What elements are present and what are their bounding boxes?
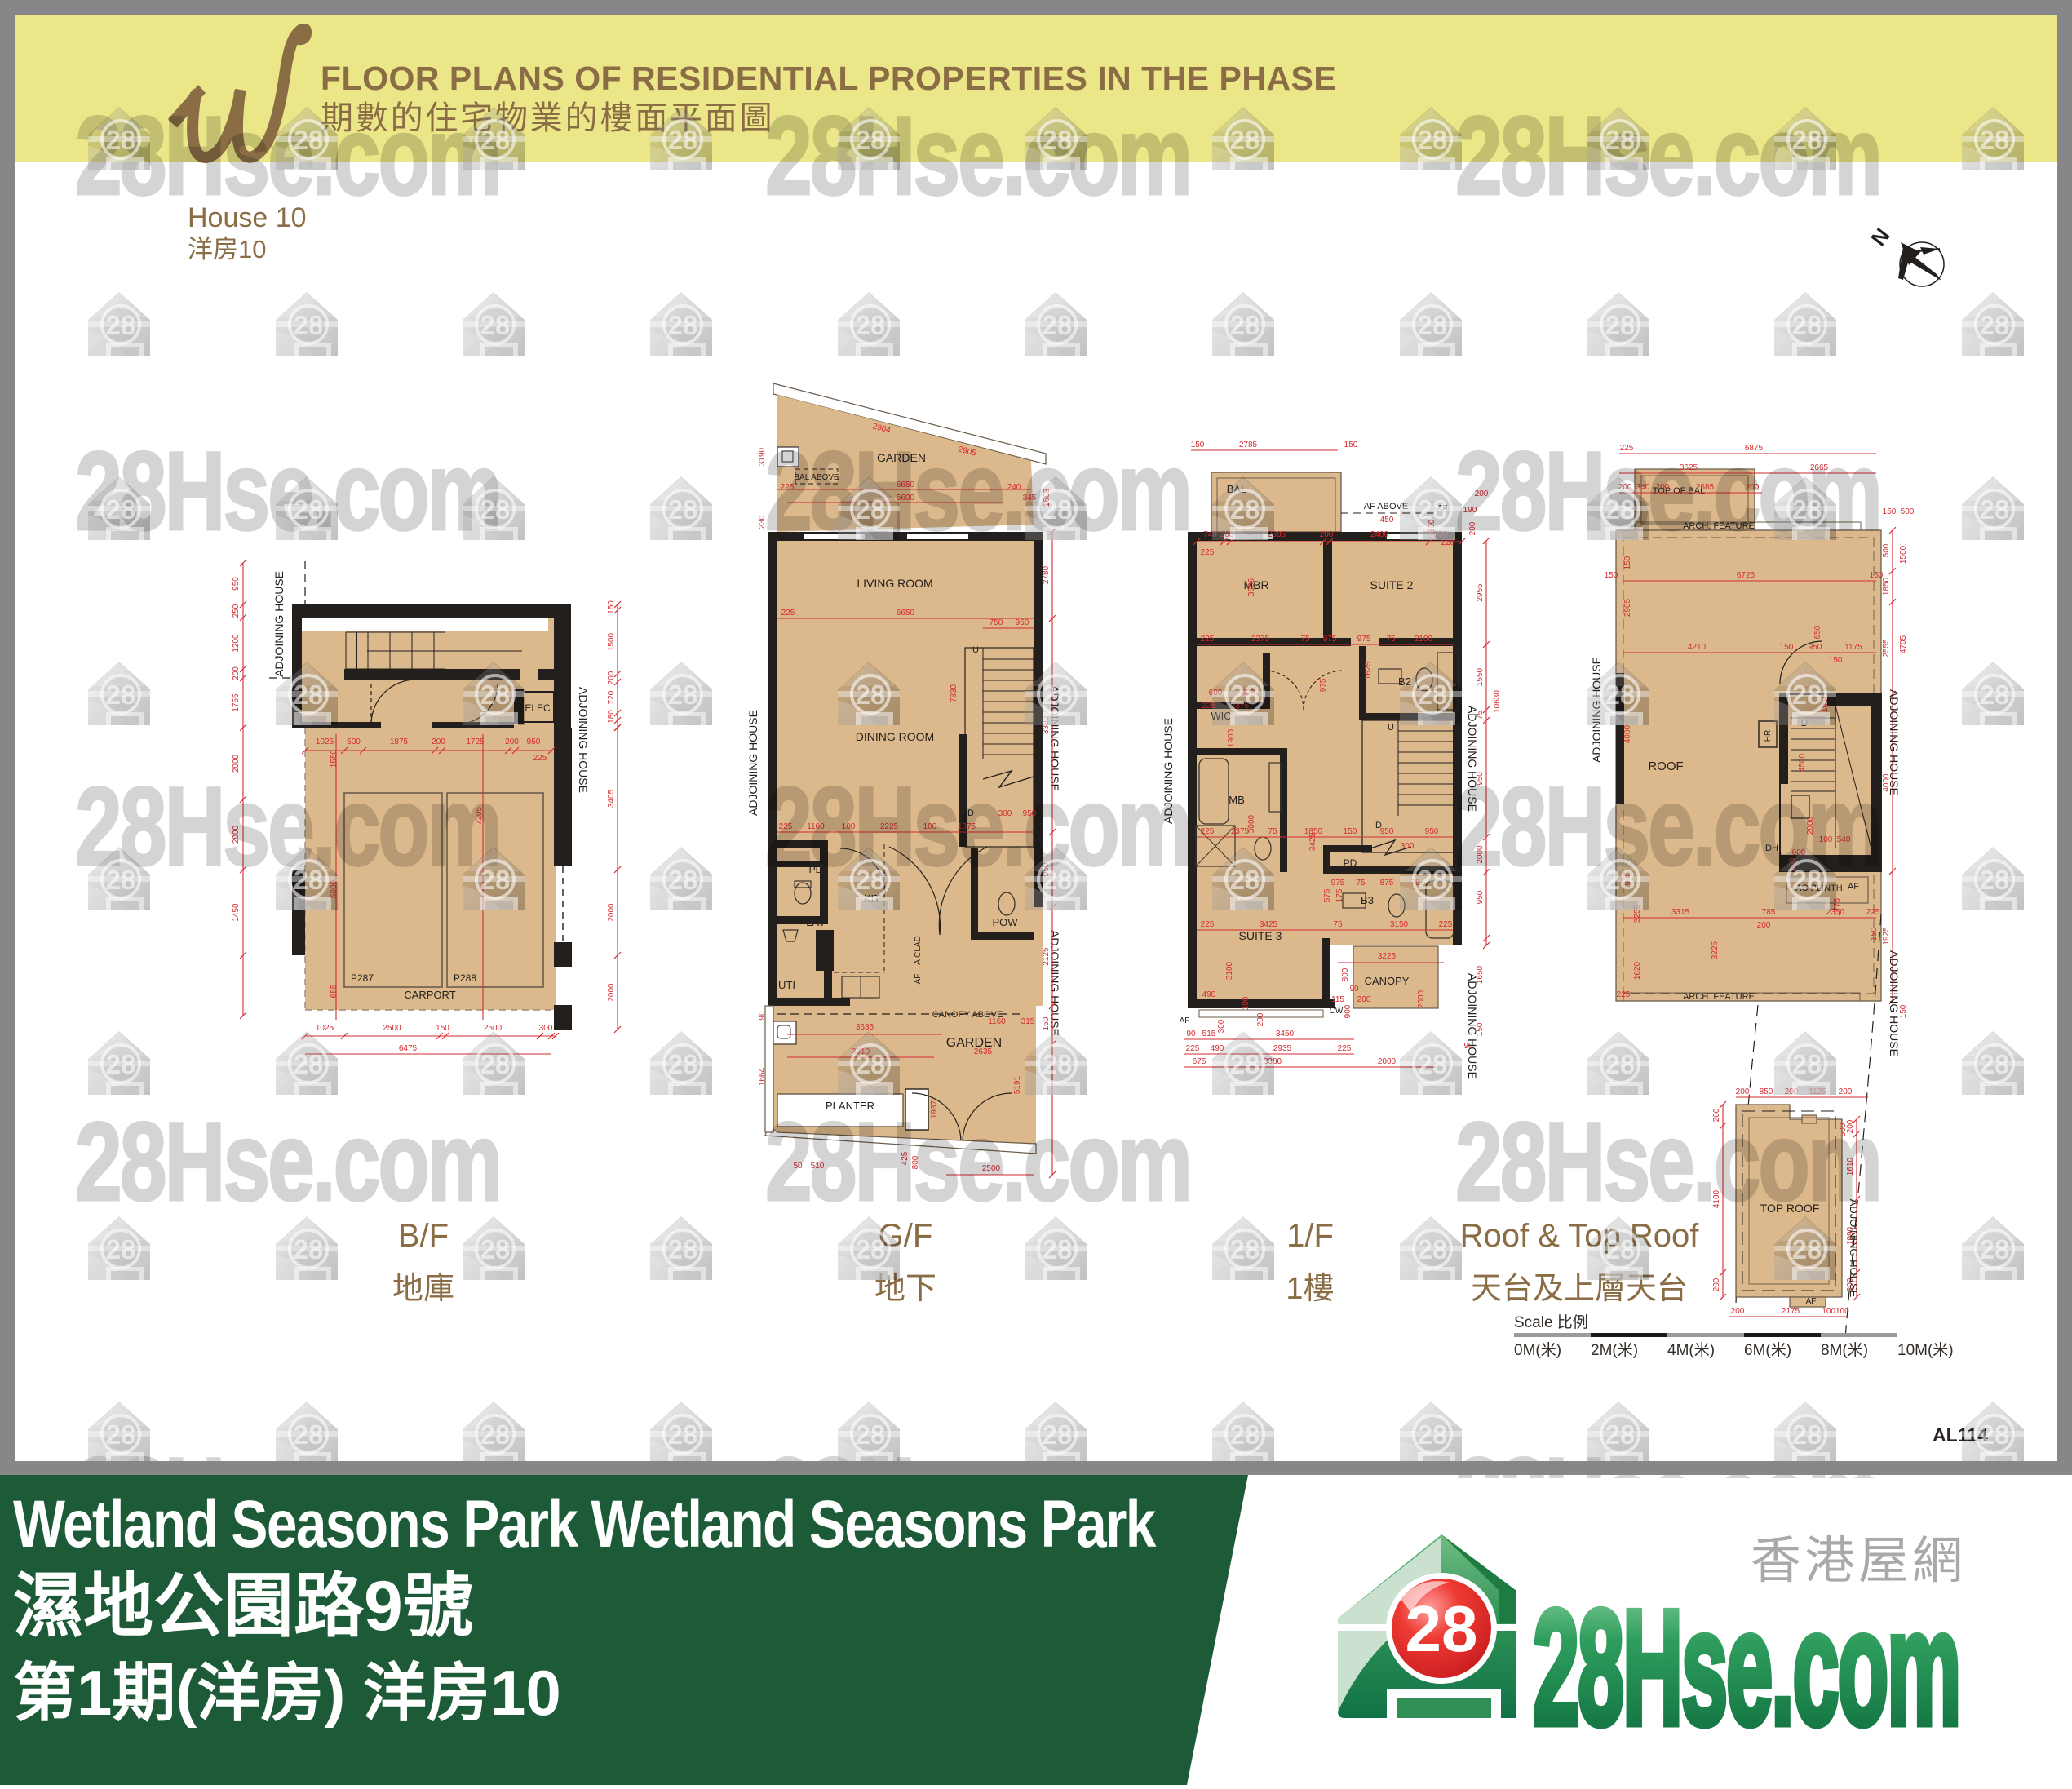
svg-text:655: 655 — [330, 984, 339, 998]
svg-text:150: 150 — [436, 1024, 449, 1033]
svg-text:Scale 比例: Scale 比例 — [1514, 1313, 1588, 1331]
svg-text:3605: 3605 — [1247, 578, 1256, 596]
svg-text:1550: 1550 — [1476, 667, 1485, 686]
svg-text:6475: 6475 — [399, 1044, 418, 1053]
svg-text:10M(米): 10M(米) — [1897, 1341, 1954, 1359]
svg-text:AF: AF — [914, 974, 923, 985]
svg-text:CARPORT: CARPORT — [404, 989, 455, 1001]
svg-text:3405: 3405 — [607, 789, 616, 808]
svg-text:150: 150 — [1883, 507, 1897, 516]
svg-text:P287: P287 — [351, 972, 374, 984]
svg-text:1500: 1500 — [1899, 545, 1908, 564]
svg-text:P288: P288 — [454, 972, 476, 984]
svg-text:1025: 1025 — [316, 1024, 334, 1033]
svg-text:CW: CW — [1330, 1007, 1344, 1016]
svg-text:2000: 2000 — [607, 983, 616, 1002]
svg-text:CANOPY: CANOPY — [1365, 975, 1410, 987]
svg-text:200: 200 — [232, 666, 241, 680]
svg-text:10630: 10630 — [1493, 690, 1502, 713]
svg-text:2175: 2175 — [1782, 1307, 1800, 1316]
svg-text:975: 975 — [1331, 879, 1345, 888]
svg-text:FLOOR PLANS OF RESIDENTIAL PRO: FLOOR PLANS OF RESIDENTIAL PROPERTIES IN… — [321, 60, 1336, 97]
svg-text:950: 950 — [1380, 827, 1394, 836]
svg-text:28Hse.com: 28Hse.com — [1455, 1099, 1880, 1224]
svg-text:1625: 1625 — [1364, 661, 1373, 680]
svg-text:2125: 2125 — [1042, 947, 1051, 966]
svg-text:150: 150 — [1344, 441, 1358, 449]
svg-text:28Hse.com: 28Hse.com — [765, 93, 1190, 218]
svg-text:ADJOINING HOUSE: ADJOINING HOUSE — [746, 710, 759, 816]
svg-text:950: 950 — [1476, 890, 1485, 904]
svg-text:1160: 1160 — [988, 1017, 1006, 1026]
svg-text:200: 200 — [607, 671, 616, 684]
svg-text:300: 300 — [1217, 1019, 1226, 1033]
svg-text:2500: 2500 — [383, 1024, 401, 1033]
svg-text:75: 75 — [1386, 635, 1396, 644]
svg-text:75: 75 — [1356, 879, 1366, 888]
svg-text:200: 200 — [1736, 1087, 1750, 1096]
svg-text:3425: 3425 — [1260, 920, 1278, 929]
svg-text:225: 225 — [1186, 1044, 1200, 1053]
svg-text:75: 75 — [1476, 711, 1485, 720]
svg-text:225: 225 — [1201, 827, 1215, 836]
svg-text:720: 720 — [607, 690, 616, 704]
svg-text:200: 200 — [1757, 921, 1771, 930]
svg-text:1664: 1664 — [758, 1067, 767, 1086]
svg-text:200: 200 — [1320, 530, 1334, 539]
svg-text:2785: 2785 — [1239, 441, 1258, 449]
svg-text:90: 90 — [758, 1011, 767, 1021]
svg-text:3000: 3000 — [1247, 814, 1256, 833]
svg-text:4705: 4705 — [1899, 635, 1908, 653]
svg-text:300: 300 — [539, 1024, 553, 1033]
svg-text:800: 800 — [1341, 968, 1350, 981]
svg-text:500: 500 — [1882, 543, 1891, 557]
svg-text:575: 575 — [1323, 888, 1332, 902]
svg-text:洋房10: 洋房10 — [188, 235, 266, 263]
svg-text:200: 200 — [505, 737, 519, 746]
svg-text:2000: 2000 — [1378, 1057, 1397, 1066]
svg-text:ADJOINING HOUSE: ADJOINING HOUSE — [1888, 950, 1901, 1056]
svg-text:150: 150 — [1476, 1022, 1485, 1036]
svg-text:90: 90 — [1463, 1042, 1473, 1051]
svg-text:2905: 2905 — [1623, 598, 1632, 617]
svg-text:150: 150 — [1623, 556, 1632, 569]
svg-text:5191: 5191 — [1013, 1075, 1022, 1094]
svg-text:2400: 2400 — [1370, 530, 1389, 539]
svg-text:4210: 4210 — [1688, 643, 1707, 652]
svg-text:950: 950 — [1425, 827, 1439, 836]
svg-text:2780: 2780 — [1042, 565, 1051, 584]
svg-text:950: 950 — [527, 737, 541, 746]
svg-text:150: 150 — [1042, 1016, 1051, 1030]
svg-text:200: 200 — [432, 737, 445, 746]
svg-text:250: 250 — [232, 604, 241, 618]
svg-text:225: 225 — [1201, 635, 1215, 644]
svg-text:2555: 2555 — [1882, 639, 1891, 658]
svg-text:3100: 3100 — [1225, 961, 1234, 980]
svg-text:LIVING ROOM: LIVING ROOM — [857, 577, 932, 590]
svg-text:ADJOINING HOUSE: ADJOINING HOUSE — [1888, 689, 1901, 795]
svg-text:28: 28 — [1406, 1592, 1478, 1665]
svg-text:地庫: 地庫 — [392, 1272, 454, 1306]
svg-text:ADJOINING HOUSE: ADJOINING HOUSE — [272, 571, 286, 677]
svg-text:28Hse.com: 28Hse.com — [1533, 1576, 1959, 1759]
svg-text:150: 150 — [1780, 643, 1794, 652]
svg-text:B3: B3 — [1361, 894, 1374, 906]
svg-text:3225: 3225 — [1711, 941, 1720, 959]
svg-text:SUITE 3: SUITE 3 — [1239, 929, 1282, 942]
svg-text:1025: 1025 — [316, 737, 334, 746]
svg-text:4000: 4000 — [1623, 724, 1632, 743]
svg-text:1500: 1500 — [607, 632, 616, 651]
svg-text:200: 200 — [1839, 1087, 1853, 1096]
svg-text:28Hse.com: 28Hse.com — [765, 428, 1190, 553]
svg-text:0M(米): 0M(米) — [1514, 1341, 1561, 1359]
svg-text:225: 225 — [1617, 990, 1631, 999]
svg-text:3425: 3425 — [1308, 832, 1317, 851]
svg-text:1200: 1200 — [232, 634, 241, 653]
svg-text:200: 200 — [1731, 1307, 1745, 1316]
svg-text:115: 115 — [1331, 995, 1344, 1004]
svg-text:90: 90 — [1186, 1030, 1196, 1038]
svg-text:200: 200 — [1256, 1012, 1265, 1026]
svg-text:750: 750 — [990, 618, 1003, 627]
svg-text:900: 900 — [1344, 1004, 1353, 1018]
svg-text:225: 225 — [1201, 548, 1215, 557]
svg-text:500: 500 — [347, 737, 361, 746]
svg-text:3225: 3225 — [1378, 952, 1397, 961]
svg-text:3150: 3150 — [1390, 920, 1409, 929]
svg-text:150: 150 — [1344, 827, 1357, 836]
svg-text:1450: 1450 — [232, 903, 241, 922]
svg-text:U: U — [972, 645, 979, 655]
svg-text:1620: 1620 — [1633, 961, 1642, 980]
svg-text:150: 150 — [1829, 656, 1843, 665]
svg-text:490: 490 — [1202, 990, 1216, 999]
svg-text:濕地公園路9號: 濕地公園路9號 — [13, 1567, 473, 1645]
svg-text:28Hse.com: 28Hse.com — [765, 1099, 1190, 1224]
svg-text:8M(米): 8M(米) — [1821, 1341, 1868, 1359]
svg-text:100100: 100100 — [1822, 1307, 1849, 1316]
svg-text:1925: 1925 — [1882, 927, 1891, 945]
svg-text:3450: 3450 — [1276, 1030, 1295, 1038]
svg-text:450: 450 — [1380, 516, 1394, 525]
svg-text:315: 315 — [1021, 1017, 1035, 1026]
svg-text:2635: 2635 — [974, 1047, 993, 1056]
svg-text:第1期(洋房) 洋房10: 第1期(洋房) 洋房10 — [13, 1657, 561, 1729]
svg-text:225: 225 — [781, 609, 795, 618]
svg-text:7830: 7830 — [950, 684, 959, 702]
svg-text:3635: 3635 — [856, 1023, 874, 1032]
svg-text:1/F: 1/F — [1286, 1218, 1334, 1254]
svg-text:150: 150 — [1870, 927, 1879, 941]
svg-text:28Hse.com: 28Hse.com — [75, 1099, 500, 1224]
svg-text:6650: 6650 — [897, 609, 915, 618]
svg-text:950: 950 — [1809, 643, 1822, 652]
svg-text:2955: 2955 — [1476, 583, 1485, 602]
svg-text:2000: 2000 — [1417, 990, 1426, 1008]
svg-text:225: 225 — [1201, 920, 1215, 929]
svg-text:1875: 1875 — [390, 737, 409, 746]
svg-text:2935: 2935 — [1273, 1044, 1292, 1053]
svg-text:SUITE 2: SUITE 2 — [1370, 578, 1414, 591]
svg-text:180: 180 — [607, 710, 616, 724]
svg-text:875: 875 — [1380, 879, 1394, 888]
svg-text:POW: POW — [992, 916, 1018, 928]
svg-text:ARCH. FEATURE: ARCH. FEATURE — [1683, 992, 1755, 1002]
svg-text:150: 150 — [1605, 571, 1618, 580]
svg-text:200: 200 — [1357, 995, 1371, 1004]
svg-text:AF: AF — [1806, 1297, 1817, 1306]
svg-text:100: 100 — [1242, 996, 1251, 1010]
svg-text:2M(米): 2M(米) — [1591, 1341, 1638, 1359]
svg-text:Wetland Seasons Park Wetland S: Wetland Seasons Park Wetland Seasons Par… — [13, 1486, 1157, 1561]
svg-text:1樓: 1樓 — [1286, 1272, 1334, 1306]
svg-text:香港屋網: 香港屋網 — [1751, 1533, 1966, 1589]
svg-text:175: 175 — [1335, 888, 1344, 902]
svg-text:6M(米): 6M(米) — [1744, 1341, 1791, 1359]
svg-text:300: 300 — [1401, 842, 1415, 851]
svg-text:1900: 1900 — [1227, 728, 1236, 747]
svg-text:UTI: UTI — [778, 979, 795, 991]
svg-text:MB: MB — [1229, 794, 1245, 806]
svg-text:2100: 2100 — [1415, 635, 1433, 644]
svg-text:1650: 1650 — [1476, 965, 1485, 984]
svg-text:A CLAD: A CLAD — [914, 936, 923, 965]
svg-text:75: 75 — [1268, 827, 1277, 836]
svg-text:2500: 2500 — [484, 1024, 503, 1033]
svg-text:1175: 1175 — [1844, 643, 1862, 652]
svg-text:225: 225 — [1338, 1044, 1352, 1053]
svg-text:28Hse.com: 28Hse.com — [765, 764, 1190, 888]
svg-text:975: 975 — [1357, 635, 1371, 644]
svg-text:75: 75 — [1333, 920, 1343, 929]
svg-text:150: 150 — [1191, 441, 1205, 449]
svg-text:950: 950 — [1016, 618, 1029, 627]
svg-text:4M(米): 4M(米) — [1667, 1341, 1715, 1359]
svg-text:1755: 1755 — [232, 693, 241, 712]
svg-text:785: 785 — [1762, 908, 1776, 917]
svg-text:6725: 6725 — [1737, 571, 1755, 580]
svg-text:675: 675 — [1193, 1057, 1206, 1066]
svg-text:500: 500 — [1901, 507, 1915, 516]
svg-text:3315: 3315 — [1671, 908, 1690, 917]
svg-text:HR: HR — [1764, 730, 1773, 742]
svg-text:2000: 2000 — [607, 903, 616, 922]
svg-text:天台及上層天台: 天台及上層天台 — [1471, 1272, 1688, 1306]
svg-text:150: 150 — [607, 600, 616, 614]
svg-text:515: 515 — [1202, 1030, 1216, 1038]
svg-text:ELEC: ELEC — [525, 702, 551, 714]
svg-text:1850: 1850 — [1882, 577, 1891, 596]
svg-text:200: 200 — [1712, 1278, 1721, 1291]
svg-text:DINING ROOM: DINING ROOM — [856, 730, 934, 743]
svg-text:950: 950 — [232, 577, 241, 591]
svg-text:225: 225 — [533, 754, 547, 763]
svg-text:850: 850 — [1760, 1087, 1773, 1096]
svg-text:225: 225 — [1439, 920, 1453, 929]
svg-text:650: 650 — [1813, 625, 1822, 639]
svg-text:975: 975 — [1323, 635, 1337, 644]
svg-text:LAV: LAV — [806, 916, 826, 928]
svg-text:75: 75 — [1300, 635, 1310, 644]
svg-text:AF: AF — [1180, 1016, 1190, 1025]
svg-text:U: U — [1388, 723, 1394, 733]
svg-text:90: 90 — [1349, 985, 1359, 994]
svg-text:2375: 2375 — [1251, 635, 1270, 644]
svg-text:975: 975 — [1319, 678, 1328, 692]
svg-text:ADJOINING HOUSE: ADJOINING HOUSE — [577, 687, 590, 793]
svg-text:225: 225 — [1866, 908, 1880, 917]
svg-text:1725: 1725 — [466, 737, 485, 746]
